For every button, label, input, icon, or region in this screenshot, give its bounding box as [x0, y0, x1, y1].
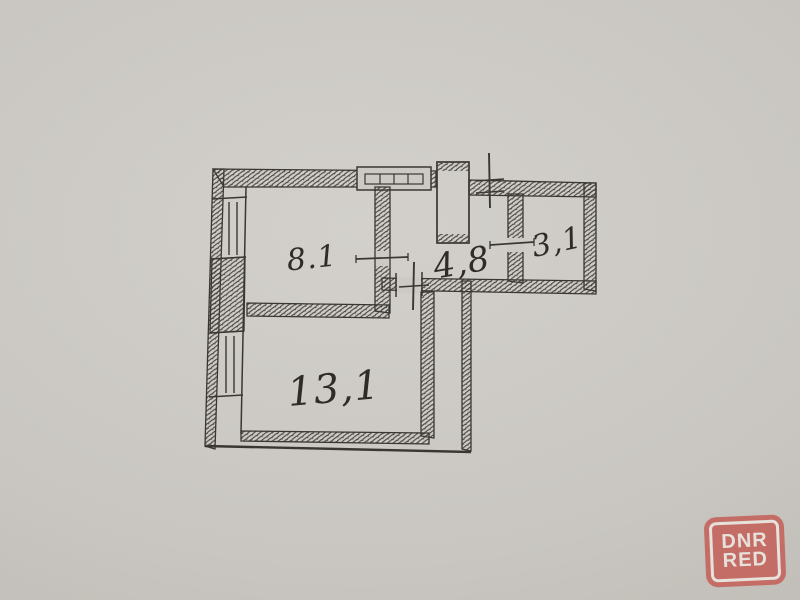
room-label-3-1: 3,1	[529, 220, 586, 265]
ventilation-shaft	[437, 162, 469, 243]
wall-4-8-3-1	[507, 194, 524, 283]
wall-8-1-13-1	[247, 303, 389, 318]
wall-pier	[210, 257, 245, 333]
window-icon	[357, 167, 431, 190]
watermark-badge: DNR RED	[704, 514, 787, 587]
wall-8-1-corridor	[374, 187, 391, 313]
watermark-line2: RED	[722, 550, 768, 571]
wall-13-1-right	[421, 292, 434, 438]
room-label-8-1: 8.1	[285, 238, 339, 278]
room-label-13-1: 13,1	[286, 362, 383, 416]
floor-plan-drawing: 8.1 4,8 3,1 13,1	[0, 0, 800, 600]
floor-plan-photo: 8.1 4,8 3,1 13,1 DNR RED	[0, 0, 800, 600]
outer-right-lower-wall	[462, 281, 471, 451]
watermark-text: DNR RED	[709, 520, 782, 583]
